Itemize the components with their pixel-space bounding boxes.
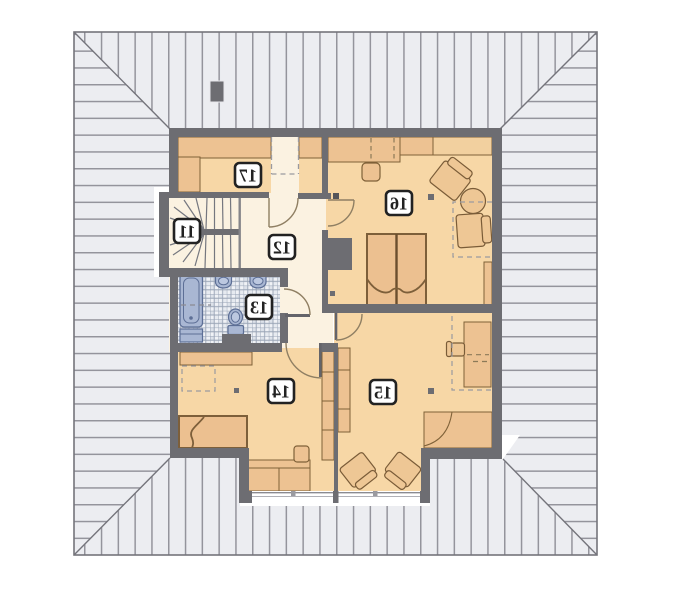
svg-text:14: 14 <box>272 382 290 402</box>
svg-text:12: 12 <box>273 238 291 258</box>
svg-text:17: 17 <box>239 166 257 186</box>
svg-text:13: 13 <box>250 298 268 318</box>
svg-text:15: 15 <box>374 383 392 403</box>
svg-text:11: 11 <box>178 222 195 242</box>
svg-text:16: 16 <box>390 194 408 214</box>
